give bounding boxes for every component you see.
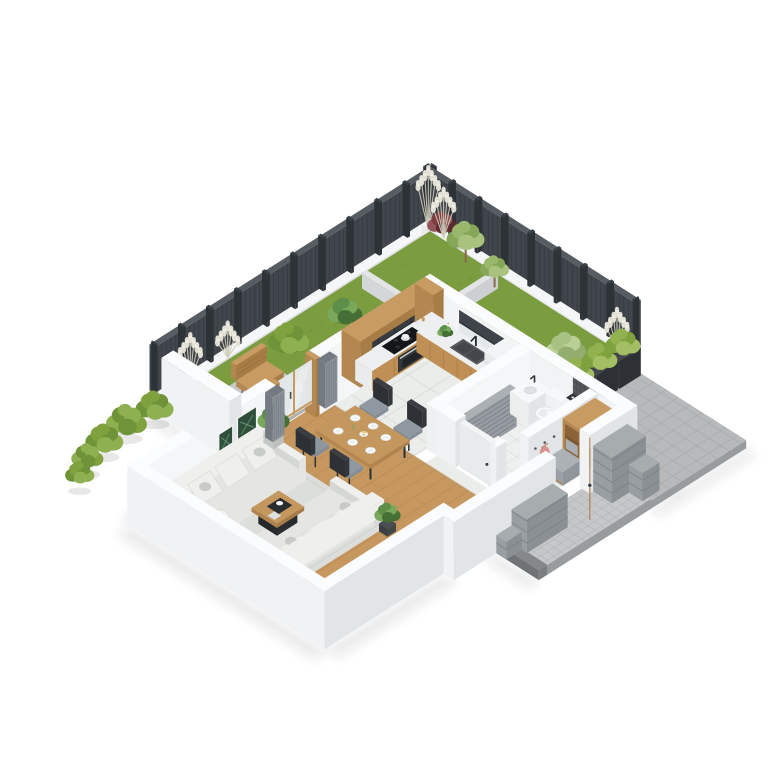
isometric-scene bbox=[0, 0, 768, 768]
floorplan-render bbox=[0, 0, 768, 768]
